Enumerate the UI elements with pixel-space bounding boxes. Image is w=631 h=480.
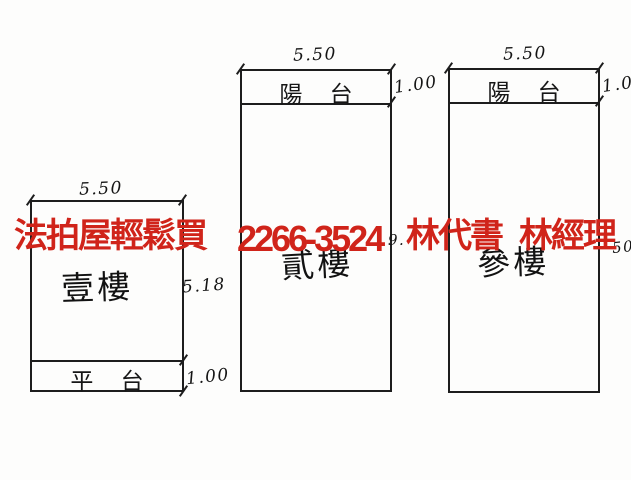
watermark-contact-scrivener: 林代書 xyxy=(406,219,502,253)
floor3-width-dimension: 5.50 xyxy=(503,43,548,65)
watermark-contact-manager: 林經理 xyxy=(519,219,615,253)
watermark-phone-number: 2266-3524 xyxy=(237,221,382,257)
watermark-agency-name: 法拍屋輕鬆買 xyxy=(14,219,206,253)
floor1-platform-label: 平 台 xyxy=(32,362,182,396)
floor2-balcony-dimension: 1.00 xyxy=(393,72,439,98)
floor1-width-dimension: 5.50 xyxy=(79,178,124,200)
floor2-balcony-label: 陽 台 xyxy=(242,75,390,109)
floor1-room-label: 壹樓 xyxy=(60,260,134,310)
floor1-side-dimension: 5.18 xyxy=(181,274,226,297)
floor3-balcony-label: 陽 台 xyxy=(450,73,598,107)
floor-plan-canvas: 5.50 平 台 壹樓 5.18 1.00 5.50 陽 台 貳樓 1.00 9… xyxy=(0,0,631,480)
floor1-platform-dimension: 1.00 xyxy=(185,365,231,389)
floor3-balcony-dimension: 1.00 xyxy=(601,71,631,97)
floor2-width-dimension: 5.50 xyxy=(293,44,338,66)
floor2-side-dimension-partial: 9. xyxy=(388,231,405,249)
